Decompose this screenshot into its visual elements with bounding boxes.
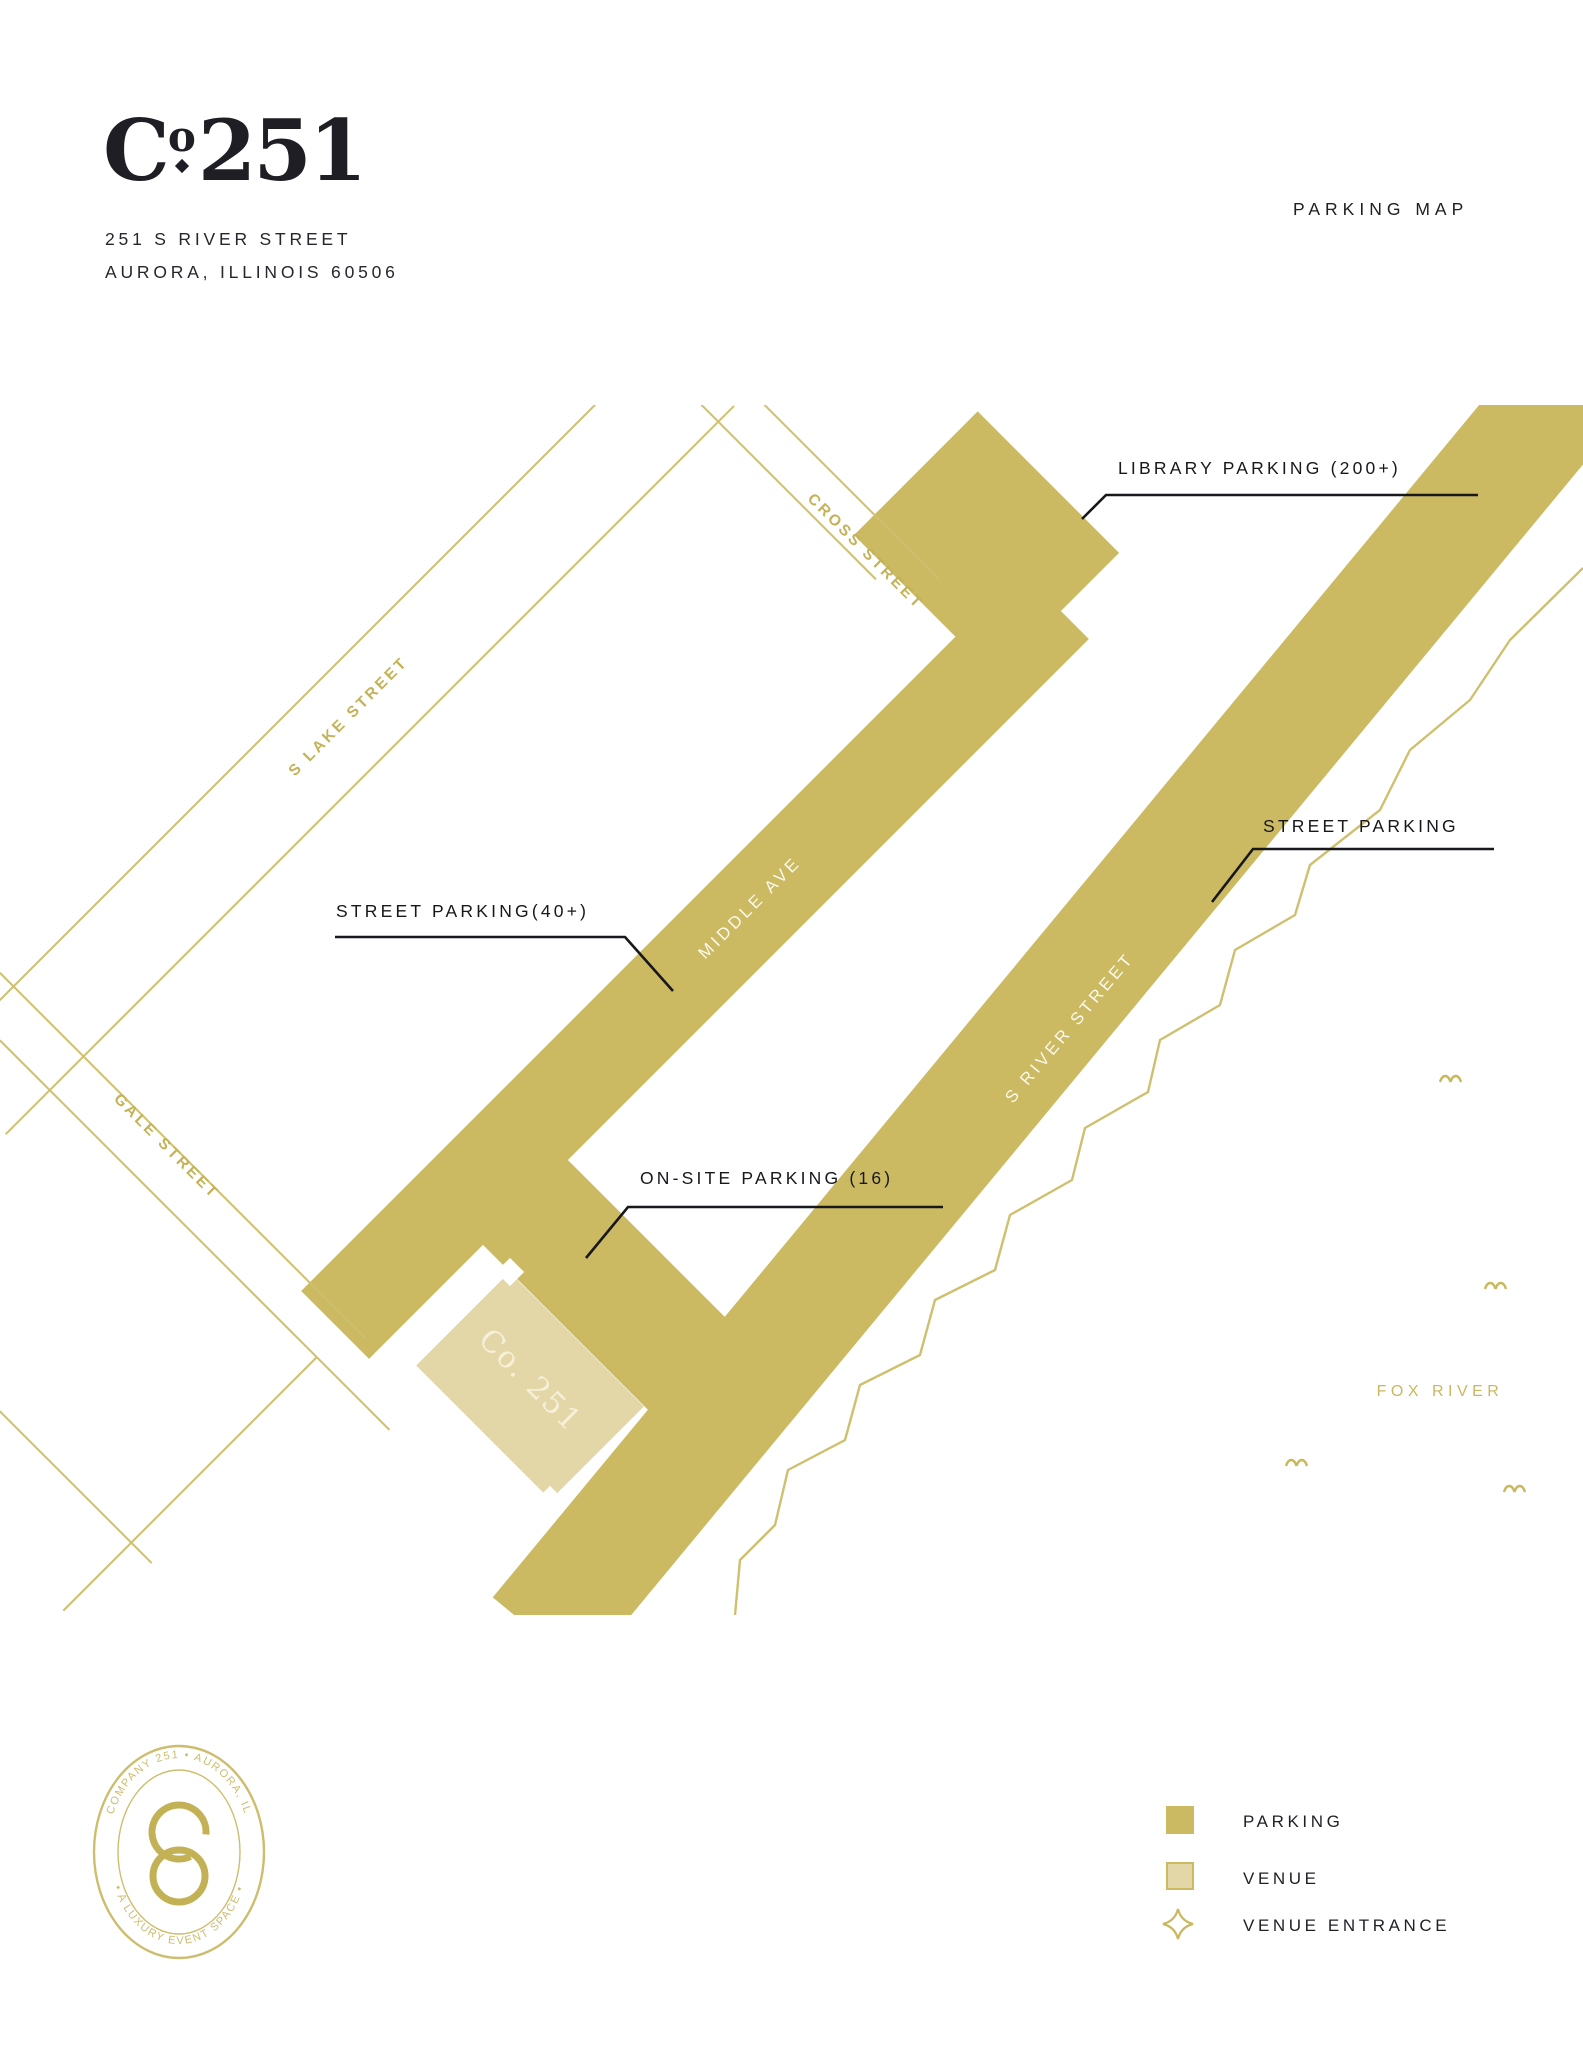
parking-map: Co. 251 LIBRARY PARKING (200+) STREET PA… [0,405,1583,1615]
logo-dot [175,159,189,173]
company-seal: COMPANY 251 • AURORA, IL • A LUXURY EVEN… [88,1738,270,1966]
address-line-1: 251 S RIVER STREET [105,229,351,250]
water-wave-icon-1 [1440,1076,1461,1082]
label-onsite-parking: ON-SITE PARKING (16) [640,1168,893,1189]
water-wave-icon-4 [1504,1486,1525,1492]
leader-line-street-parking-left [335,937,673,991]
water-wave-icon-2 [1485,1283,1506,1289]
legend-parking-swatch [1166,1806,1194,1834]
legend-venue-label: VENUE [1243,1869,1320,1889]
fox-river-bank-line [735,568,1583,1615]
water-wave-icon-3 [1286,1460,1307,1466]
logo-number: 251 [198,118,364,184]
map-line-work [0,405,1583,1615]
leader-line-street-parking-right [1212,849,1494,902]
legend-venue-swatch [1166,1862,1194,1890]
legend-venue-entrance-icon [1160,1906,1196,1942]
legend-parking-label: PARKING [1243,1812,1343,1832]
label-street-parking-left: STREET PARKING(40+) [336,901,589,922]
legend-venue-entrance-label: VENUE ENTRANCE [1243,1916,1450,1936]
label-library-parking: LIBRARY PARKING (200+) [1118,458,1401,479]
seal-bottom-text: • A LUXURY EVENT SPACE • [111,1884,246,1947]
page-title: PARKING MAP [1293,199,1468,220]
label-street-parking-right: STREET PARKING [1263,816,1459,837]
label-fox-river: FOX RIVER [1330,1383,1550,1401]
leader-line-library [1082,495,1478,519]
company-logo: C o 251 [103,118,364,184]
address-line-2: AURORA, ILLINOIS 60506 [105,262,399,283]
logo-letter-c: C [103,118,167,184]
leader-line-onsite [586,1207,943,1258]
logo-o-stack: o [168,120,196,171]
svg-text:• A LUXURY EVENT SPACE •: • A LUXURY EVENT SPACE • [111,1884,246,1947]
